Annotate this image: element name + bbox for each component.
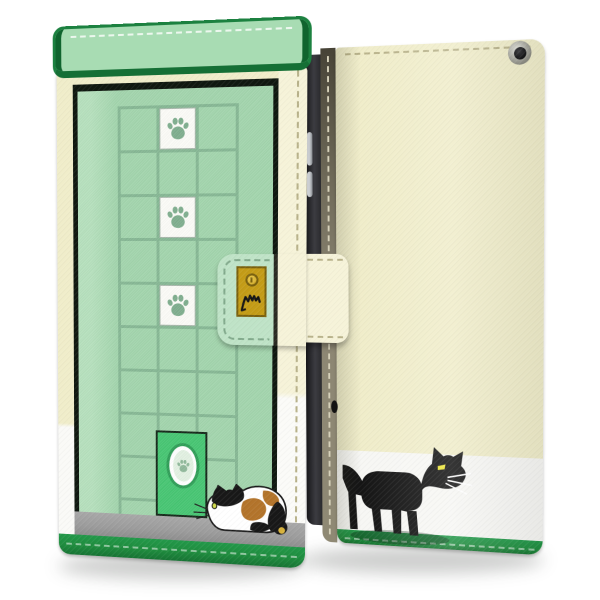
snap-button <box>245 273 258 286</box>
paw-print-icon <box>165 115 191 142</box>
charm-cat-scribble-icon <box>239 291 263 314</box>
case-front-view <box>56 16 307 569</box>
gold-charm <box>236 266 266 317</box>
medallion-ring <box>169 446 196 487</box>
product-shot <box>0 0 600 600</box>
calico-cat-illustration <box>194 469 294 546</box>
paw-print-icon <box>176 458 191 473</box>
medallion-center <box>173 450 193 482</box>
paw-print-icon <box>165 292 190 318</box>
paw-tile <box>160 285 196 326</box>
strap-hole <box>331 400 338 413</box>
paw-tile <box>159 107 195 149</box>
volume-button <box>307 132 313 166</box>
spine-edge-strip <box>57 72 75 555</box>
strap-stitching <box>307 259 343 339</box>
paw-tile <box>159 197 195 238</box>
clasp-strap-front <box>217 254 307 346</box>
clasp-strap-back <box>305 254 348 343</box>
case-back-view <box>320 39 545 556</box>
trim-stitching <box>66 543 297 558</box>
paw-print-icon <box>165 204 191 230</box>
flap-stitching <box>71 27 292 38</box>
back-panel <box>335 39 544 556</box>
back-shading <box>335 39 544 556</box>
calico-eye <box>212 503 217 509</box>
power-button <box>307 171 313 197</box>
front-cover <box>57 64 308 569</box>
calico-whiskers <box>194 504 209 519</box>
front-top-flap <box>53 16 312 79</box>
